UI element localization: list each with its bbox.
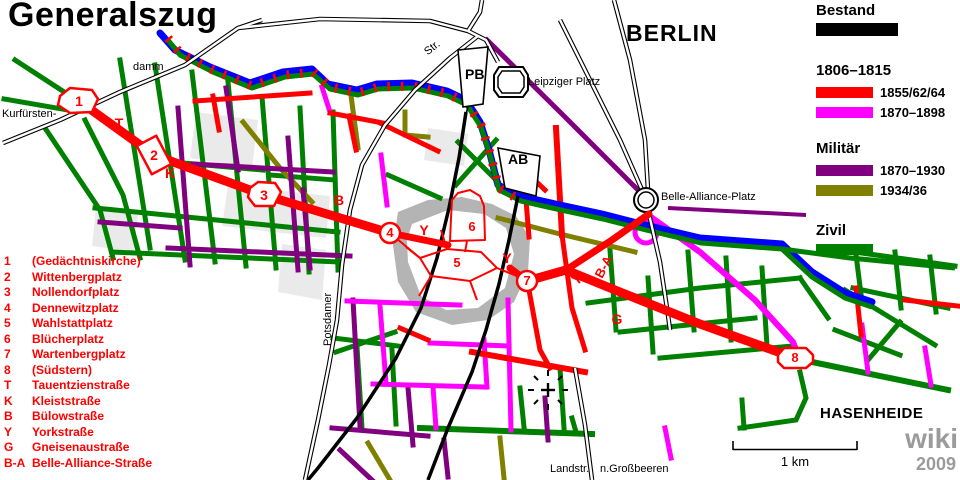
key-marker: Y <box>4 425 32 441</box>
york-marker-2: Y <box>492 250 522 266</box>
key-row: 3Nollendorfplatz <box>4 285 152 301</box>
key-marker: 8 <box>4 363 32 379</box>
kleist-marker: K <box>155 165 185 181</box>
key-marker: 6 <box>4 332 32 348</box>
key-row: GGneisenaustraße <box>4 440 152 456</box>
node-6-number: 6 <box>457 219 487 235</box>
key-row: 6Blücherplatz <box>4 332 152 348</box>
tauentzien-marker: T <box>104 115 134 131</box>
city-label: BERLIN <box>626 20 718 47</box>
key-name: Belle-Alliance-Straße <box>32 456 152 472</box>
belle-alliance-platz-label: Belle-Alliance-Platz <box>661 191 756 203</box>
key-marker: G <box>4 440 32 456</box>
legend-row: 1870–1930 <box>816 163 960 178</box>
scale-bar <box>733 441 857 450</box>
key-marker: T <box>4 378 32 394</box>
legend-bestand-swatch <box>816 23 898 36</box>
key-row: 1(Gedächtniskirche) <box>4 254 152 270</box>
key-name: Gneisenaustraße <box>32 440 129 456</box>
potsdamer-label: Potsdamer <box>322 274 334 346</box>
kurfuersten-label: Kurfürsten- <box>2 108 56 120</box>
key-name: Wahlstattplatz <box>32 316 113 332</box>
node-8-number: 8 <box>780 350 810 366</box>
node-5-number: 5 <box>442 255 472 271</box>
map-legend: Bestand 1806–1815 1855/62/64 1870–1898 M… <box>816 2 960 255</box>
legend-row-label: 1870–1930 <box>880 163 945 178</box>
key-marker: 1 <box>4 254 32 270</box>
key-name: Wartenbergplatz <box>32 347 126 363</box>
leipziger-platz-label: Leipziger Platz <box>528 76 600 88</box>
potsdamer-bahnhof-label: PB <box>465 68 484 80</box>
hasenheide-label: HASENHEIDE <box>820 405 923 422</box>
legend-row: 1870–1898 <box>816 105 960 120</box>
legend-row: 1934/36 <box>816 183 960 198</box>
watermark-wiki: wiki <box>905 424 958 454</box>
key-row: BBülowstraße <box>4 409 152 425</box>
node-3-number: 3 <box>249 187 279 203</box>
york-marker-1: Y <box>409 222 439 238</box>
key-marker: B-A <box>4 456 32 472</box>
key-row: 5Wahlstattplatz <box>4 316 152 332</box>
key-marker: 5 <box>4 316 32 332</box>
legend-magenta-swatch <box>816 107 873 118</box>
map-title: Generalszug <box>8 0 218 35</box>
legend-olive-swatch <box>816 185 873 196</box>
sun-cross-symbol <box>528 370 568 410</box>
key-name: (Gedächtniskirche) <box>32 254 141 270</box>
key-row: KKleiststraße <box>4 394 152 410</box>
damm-label: damm <box>133 61 164 73</box>
key-name: Bülowstraße <box>32 409 104 425</box>
key-row: 7Wartenbergplatz <box>4 347 152 363</box>
key-marker: 3 <box>4 285 32 301</box>
militaer-1870-roads <box>100 40 640 480</box>
legend-militaer-header: Militär <box>816 140 960 158</box>
grossbeeren-label: n.Großbeeren <box>600 463 668 475</box>
node-4-number: 4 <box>375 225 405 241</box>
node-2-number: 2 <box>139 147 169 163</box>
legend-green-swatch <box>816 244 873 255</box>
key-name: Wittenbergplatz <box>32 270 122 286</box>
legend-row: 1855/62/64 <box>816 85 960 100</box>
key-row: 2Wittenbergplatz <box>4 270 152 286</box>
buelow-marker: B <box>324 192 354 208</box>
legend-row-label: 1870–1898 <box>880 105 945 120</box>
key-name: Nollendorfplatz <box>32 285 119 301</box>
legend-zivil-header: Zivil <box>816 222 960 240</box>
generalszug-map: Generalszug BERLIN Kurfürsten- damm Str.… <box>0 0 960 480</box>
key-marker: 2 <box>4 270 32 286</box>
key-marker: 4 <box>4 301 32 317</box>
key-row: B-ABelle-Alliance-Straße <box>4 456 152 472</box>
route-key-list: 1(Gedächtniskirche) 2Wittenbergplatz 3No… <box>4 254 152 471</box>
node-1-number: 1 <box>64 93 94 109</box>
key-name: Blücherplatz <box>32 332 104 348</box>
scale-label: 1 km <box>733 454 857 469</box>
legend-purple-swatch <box>816 165 873 176</box>
legend-bestand-header: Bestand <box>816 2 960 20</box>
legend-row-label: 1934/36 <box>880 183 927 198</box>
legend-red-swatch <box>816 87 873 98</box>
node-7-number: 7 <box>512 273 542 289</box>
militaer-road-east <box>668 208 806 215</box>
watermark-year: 2009 <box>916 454 956 474</box>
anhalter-bahnhof-label: AB <box>508 153 528 165</box>
key-row: 8(Südstern) <box>4 363 152 379</box>
key-marker: 7 <box>4 347 32 363</box>
key-row: YYorkstraße <box>4 425 152 441</box>
key-marker: B <box>4 409 32 425</box>
leipziger-platz-shape <box>494 67 528 97</box>
key-name: (Südstern) <box>32 363 92 379</box>
key-marker: K <box>4 394 32 410</box>
key-name: Tauentzienstraße <box>32 378 130 394</box>
key-name: Dennewitzplatz <box>32 301 119 317</box>
legend-row-label: 1855/62/64 <box>880 85 945 100</box>
gneisenau-marker: G <box>602 311 632 327</box>
key-row: TTauentzienstraße <box>4 378 152 394</box>
key-name: Kleiststraße <box>32 394 101 410</box>
landstrasse-label: Landstr. <box>550 463 589 475</box>
key-name: Yorkstraße <box>32 425 94 441</box>
belle-alliance-platz-shape <box>634 188 658 212</box>
key-row: 4Dennewitzplatz <box>4 301 152 317</box>
legend-period-header: 1806–1815 <box>816 62 960 80</box>
